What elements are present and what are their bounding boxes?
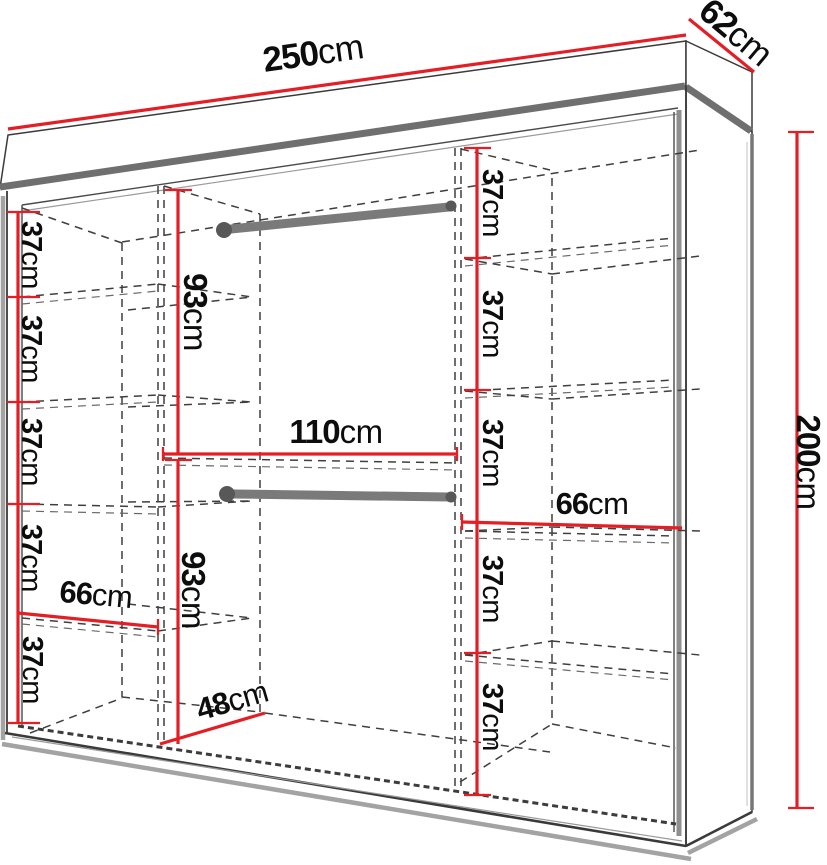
wardrobe-dimension-diagram: 250cm 62cm 200cm 37cm 37cm 37cm 37cm 37c… — [0, 0, 827, 865]
back-top-edge — [122, 150, 700, 242]
shelf-edge — [22, 504, 158, 507]
shelf-back-edge — [128, 402, 252, 407]
label-left-shelf-height: 37cm — [15, 221, 47, 289]
label-left-shelf-height: 37cm — [15, 524, 47, 592]
label-overall-height: 200cm — [791, 414, 827, 509]
label-right-shelf-height: 37cm — [476, 169, 508, 237]
shelf-depth-edge — [158, 395, 252, 402]
label-left-shelf-height: 37cm — [16, 636, 48, 704]
plinth-line — [12, 737, 682, 841]
label-right-shelf-width: 66cm — [556, 486, 629, 521]
cabinet-side-face — [686, 86, 752, 846]
shelf-edge — [22, 291, 158, 304]
middle-shelf-edge — [164, 465, 457, 470]
cabinet-body — [0, 41, 757, 859]
label-overall-width: 250cm — [260, 27, 366, 80]
rod-cap — [446, 492, 457, 503]
label-middle-width: 110cm — [289, 413, 382, 450]
label-floor-depth: 48cm — [192, 673, 272, 727]
hanging-rods — [216, 201, 457, 503]
label-right-shelf-height: 37cm — [476, 419, 508, 487]
top-depth-partition-right — [461, 149, 550, 170]
middle-shelf-edge — [164, 458, 457, 463]
shelf-edge — [22, 511, 158, 514]
shelf-back-edge — [128, 501, 252, 502]
cabinet-hidden-lines — [22, 148, 700, 790]
hanging-rod-bottom — [234, 494, 449, 497]
shelf-edge — [465, 538, 674, 543]
front-bottom-edge — [5, 733, 686, 846]
label-right-shelf-height: 37cm — [476, 683, 508, 751]
label-right-shelf-height: 37cm — [476, 555, 508, 623]
rod-cap — [446, 201, 457, 212]
floor-front-edge — [18, 726, 676, 824]
back-floor-right — [552, 724, 676, 748]
shelf-edge — [22, 402, 158, 409]
rod-cap — [219, 486, 235, 502]
label-left-shelf-height: 37cm — [15, 315, 47, 383]
label-left-shelf-height: 37cm — [15, 418, 47, 486]
label-hanging-bottom-height: 93cm — [176, 551, 213, 629]
label-left-shelf-width: 66cm — [58, 573, 134, 614]
label-hanging-top-height: 93cm — [178, 273, 215, 351]
bottom-shadow — [2, 744, 691, 859]
shelf-edge — [465, 655, 674, 674]
shelf-edge — [22, 395, 158, 402]
shelf-edge — [465, 380, 674, 391]
rod-cap — [216, 222, 232, 238]
hanging-rod-top — [231, 207, 449, 229]
shelf-edge — [465, 531, 674, 536]
diagram-svg: 250cm 62cm 200cm 37cm 37cm 37cm 37cm 37c… — [0, 0, 827, 865]
label-right-shelf-height: 37cm — [476, 290, 508, 358]
